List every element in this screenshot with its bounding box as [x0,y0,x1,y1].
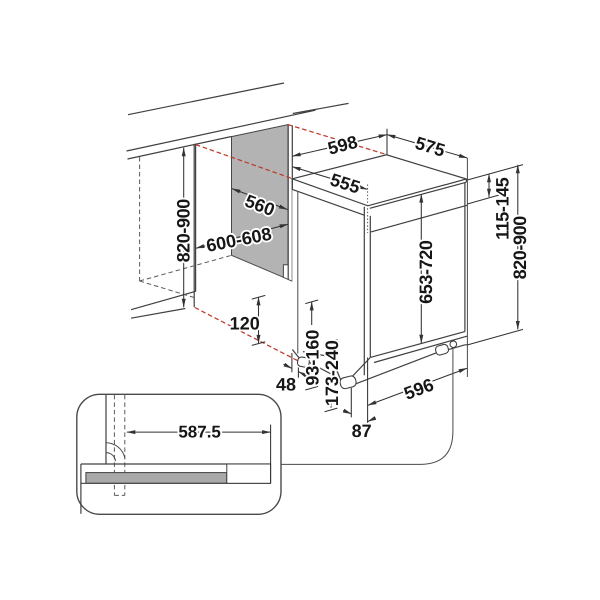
svg-text:120: 120 [230,313,260,333]
svg-text:587.5: 587.5 [178,422,221,441]
svg-text:48: 48 [276,375,296,395]
svg-text:820-900: 820-900 [173,199,193,263]
svg-text:820-900: 820-900 [510,216,530,280]
svg-text:93-160: 93-160 [302,330,322,386]
svg-text:596: 596 [401,375,436,404]
svg-text:575: 575 [413,133,448,161]
svg-text:653-720: 653-720 [416,240,436,304]
svg-text:87: 87 [352,421,372,441]
svg-text:173-240: 173-240 [322,340,342,406]
svg-text:598: 598 [326,132,360,159]
